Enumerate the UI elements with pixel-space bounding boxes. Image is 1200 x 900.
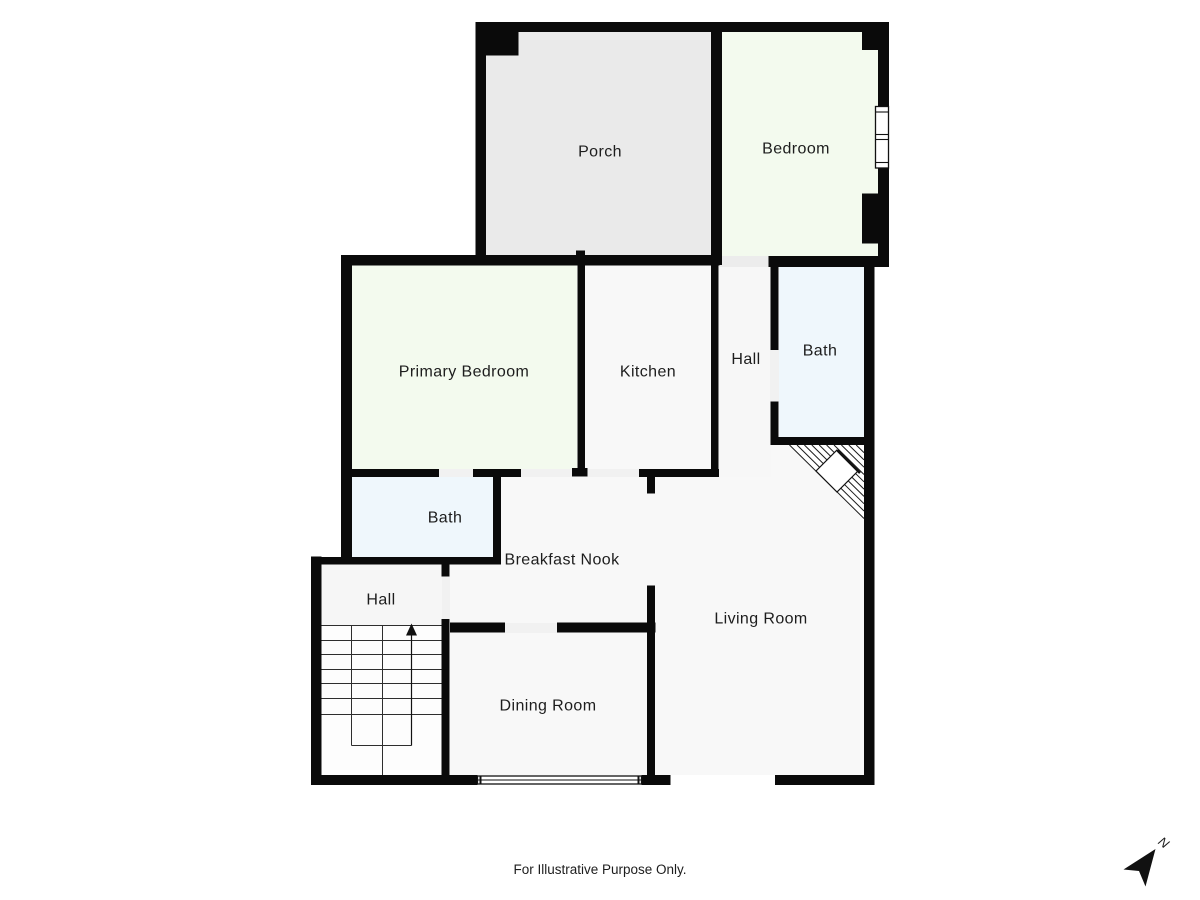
svg-text:Hall: Hall [366, 592, 395, 609]
svg-text:Porch: Porch [578, 144, 622, 161]
svg-text:Bedroom: Bedroom [762, 141, 830, 158]
svg-text:Living Room: Living Room [714, 611, 807, 628]
svg-text:For Illustrative Purpose Only.: For Illustrative Purpose Only. [513, 862, 686, 877]
svg-text:Bath: Bath [428, 510, 463, 527]
svg-text:Bath: Bath [803, 343, 838, 360]
svg-text:Dining Room: Dining Room [500, 698, 597, 715]
svg-text:Kitchen: Kitchen [620, 364, 676, 381]
svg-text:Breakfast Nook: Breakfast Nook [505, 552, 621, 569]
svg-text:Hall: Hall [731, 351, 760, 368]
svg-text:Primary Bedroom: Primary Bedroom [399, 364, 529, 381]
